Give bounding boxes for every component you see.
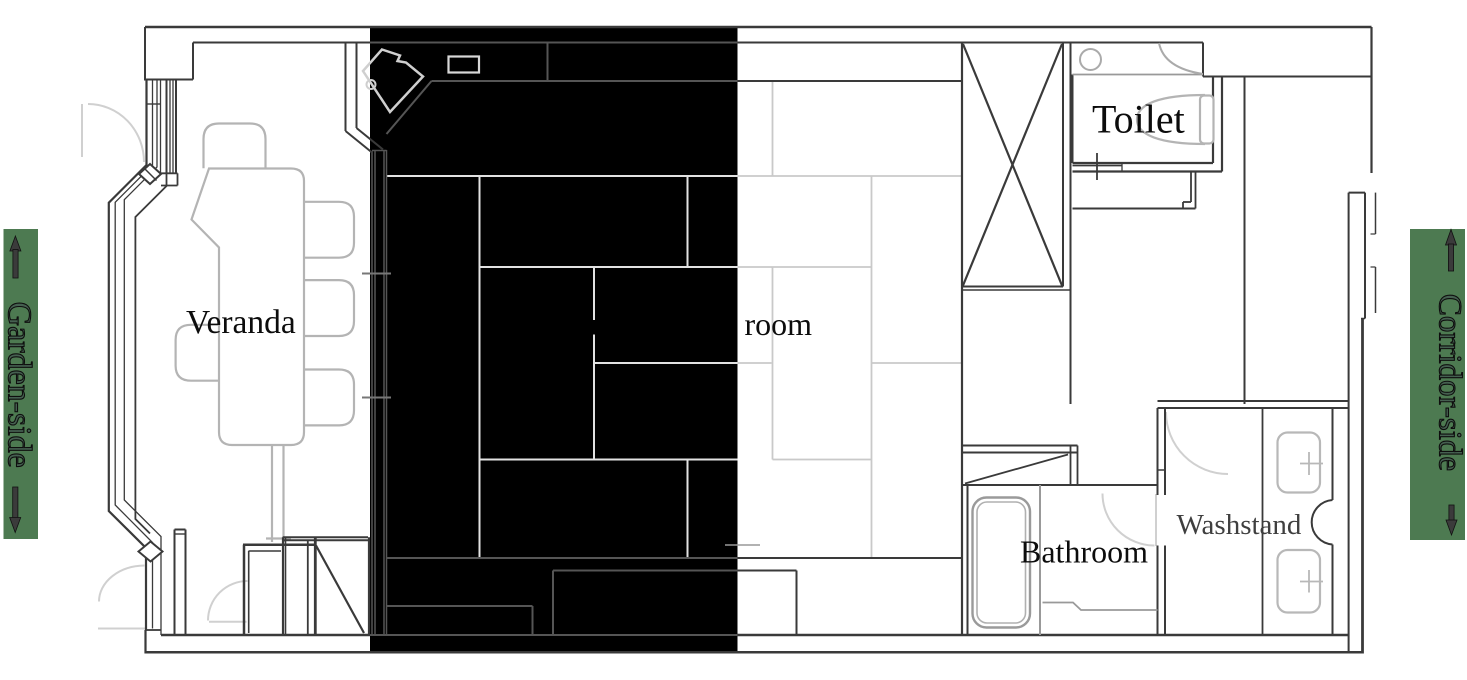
svg-text:Toilet: Toilet [1092,97,1185,142]
svg-text:Veranda: Veranda [186,304,296,341]
svg-text:Washstand: Washstand [1177,509,1302,541]
svg-text:Corridor-side: Corridor-side [1432,294,1467,471]
svg-text:Bathroom: Bathroom [1020,534,1148,570]
svg-text:Garden-side: Garden-side [0,302,37,468]
svg-text:room: room [745,306,813,342]
